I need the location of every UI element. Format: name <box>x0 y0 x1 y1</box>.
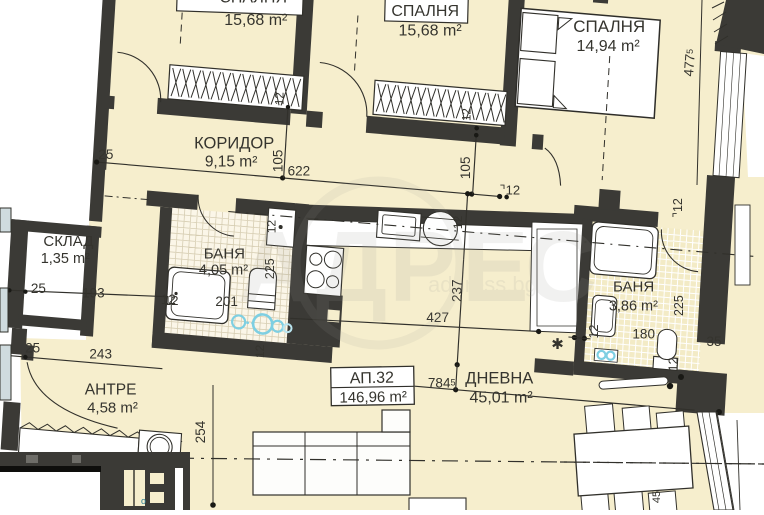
svg-text:243: 243 <box>89 346 112 361</box>
svg-text:12: 12 <box>666 357 680 371</box>
svg-text:225: 225 <box>672 295 686 316</box>
svg-text:12: 12 <box>253 344 267 358</box>
svg-text:СПАЛНЯ: СПАЛНЯ <box>391 3 459 20</box>
svg-text:АДР: АДР <box>238 211 458 323</box>
svg-text:o: o <box>141 496 146 506</box>
svg-text:12: 12 <box>161 292 176 307</box>
svg-text:address.bg: address.bg <box>428 272 537 297</box>
svg-text:25: 25 <box>98 147 113 162</box>
svg-text:622: 622 <box>288 163 311 178</box>
svg-text:35: 35 <box>706 334 721 349</box>
svg-text:СКЛАД: СКЛАД <box>43 233 93 250</box>
svg-text:105: 105 <box>271 150 286 173</box>
svg-text:12: 12 <box>587 325 601 339</box>
svg-text:193: 193 <box>82 286 105 301</box>
svg-text:45: 45 <box>651 491 663 503</box>
svg-text:15,68 m²: 15,68 m² <box>399 23 463 40</box>
svg-text:14,94 m²: 14,94 m² <box>577 38 641 55</box>
svg-text:15,68 m²: 15,68 m² <box>224 12 288 29</box>
svg-text:АП.32: АП.32 <box>350 370 395 388</box>
svg-text:БАНЯ: БАНЯ <box>613 278 654 295</box>
svg-text:146,96 m²: 146,96 m² <box>339 388 407 406</box>
svg-text:ДНЕВНА: ДНЕВНА <box>465 369 533 387</box>
svg-text:25: 25 <box>31 281 46 296</box>
svg-text:⌝12: ⌝12 <box>500 182 521 197</box>
svg-text:254: 254 <box>193 420 208 443</box>
svg-text:201: 201 <box>215 294 238 309</box>
svg-text:12: 12 <box>275 92 287 105</box>
svg-text:СПАЛНЯ: СПАЛНЯ <box>573 17 645 36</box>
svg-text:45,01 m²: 45,01 m² <box>470 390 534 407</box>
svg-text:105: 105 <box>458 157 473 180</box>
svg-text:9,15 m²: 9,15 m² <box>205 154 258 171</box>
svg-text:25: 25 <box>25 341 40 356</box>
svg-text:12: 12 <box>462 108 474 121</box>
svg-text:АНТРЕ: АНТРЕ <box>85 381 137 398</box>
svg-text:180: 180 <box>632 326 655 341</box>
svg-text:3,86 m²: 3,86 m² <box>609 298 658 314</box>
svg-text:⌝12: ⌝12 <box>671 198 685 218</box>
svg-text:СПАЛНЯ: СПАЛНЯ <box>219 0 287 7</box>
svg-text:ЕС: ЕС <box>462 211 595 323</box>
svg-text:КОРИДОР: КОРИДОР <box>194 135 274 153</box>
svg-text:1,35 m²: 1,35 m² <box>41 251 90 267</box>
svg-text:✱: ✱ <box>551 336 564 353</box>
svg-text:4,58 m²: 4,58 m² <box>87 400 138 417</box>
